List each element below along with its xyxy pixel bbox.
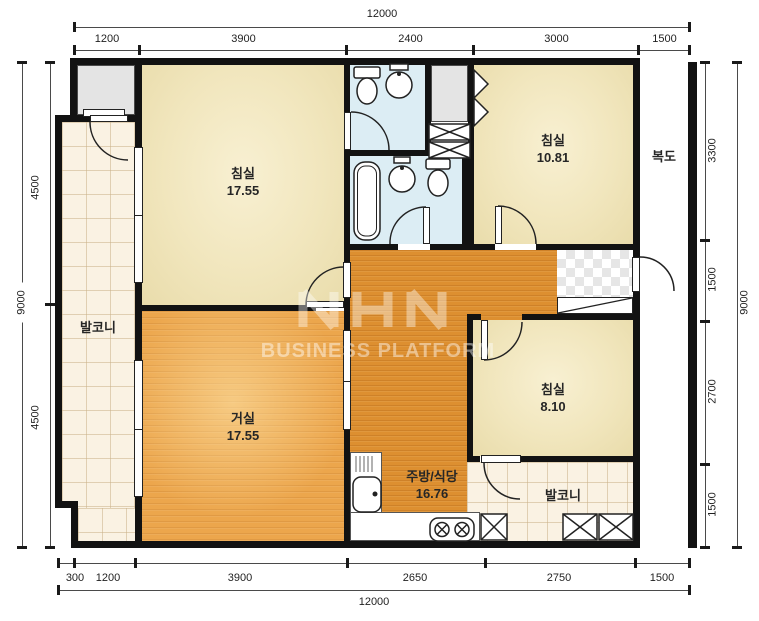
floor-plan: 12000 1200 3900 2400 3000 1500 300 1200 … [0, 0, 759, 621]
room-area: 17.55 [183, 427, 303, 444]
closet-bifold-icon [474, 70, 488, 126]
logo-letter-n1 [303, 292, 334, 327]
room-label-balcony-left: 발코니 [58, 319, 138, 336]
logo-letter-h [357, 292, 388, 327]
door-arc-balcony-left [90, 122, 128, 160]
sink-icon-bath1 [386, 64, 412, 98]
room-area: 8.10 [493, 398, 613, 415]
toilet-icon-bath1 [354, 67, 380, 104]
room-label-bedroom-right: 침실 10.81 [493, 132, 613, 166]
door-arc-bathroom-1 [351, 112, 389, 150]
room-name: 침실 [183, 165, 303, 182]
watermark-nhn-logo [303, 292, 442, 327]
room-label-corridor: 복도 [642, 148, 686, 165]
room-name: 침실 [493, 381, 613, 398]
watermark-text: BUSINESS PLATFORM [258, 340, 498, 363]
sink-icon-bath2 [389, 157, 415, 192]
room-label-bedroom-main: 침실 17.55 [183, 165, 303, 199]
door-arc-bedroom-right [498, 206, 536, 244]
stove-icon [430, 518, 474, 541]
room-name: 주방/식당 [372, 468, 492, 485]
room-name: 거실 [183, 410, 303, 427]
plan-vector-overlay [0, 0, 759, 621]
room-label-bedroom-small: 침실 8.10 [493, 381, 613, 415]
room-label-living: 거실 17.55 [183, 410, 303, 444]
room-area: 16.76 [372, 485, 492, 502]
bathtub-icon-bath2 [354, 162, 380, 240]
shoe-cabinet-diagonal [558, 298, 632, 313]
room-name: 발코니 [58, 319, 138, 336]
door-arc-entrance [640, 257, 674, 291]
door-arc-bathroom-2 [390, 207, 426, 244]
toilet-icon-bath2 [426, 159, 450, 196]
room-name: 침실 [493, 132, 613, 149]
room-label-kitchen: 주방/식당 16.76 [372, 468, 492, 502]
room-label-balcony-bottom: 발코니 [513, 487, 613, 504]
room-name: 복도 [642, 148, 686, 165]
room-area: 10.81 [493, 149, 613, 166]
logo-letter-n2 [411, 292, 442, 327]
room-name: 발코니 [513, 487, 613, 504]
room-area: 17.55 [183, 182, 303, 199]
